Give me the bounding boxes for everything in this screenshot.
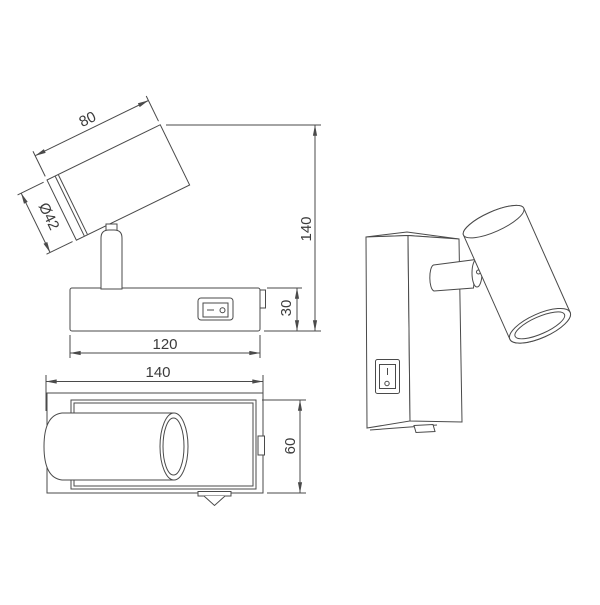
perspective-view [366, 199, 575, 432]
box-side-face [366, 236, 410, 429]
extension-line [33, 151, 45, 176]
dim-label-head-diameter: Ø42 [35, 200, 63, 233]
dim-base-width: 120 [70, 335, 260, 358]
dim-base-depth: 60 [262, 400, 306, 493]
switch-frame-top [198, 492, 231, 497]
extension-line [146, 96, 158, 121]
side-tab-top [258, 436, 265, 455]
bottom-tab [414, 425, 435, 433]
dim-label-head-length: 80 [76, 108, 98, 131]
spot-head-side: 80 Ø42 [0, 84, 190, 254]
switch-rocker [203, 303, 228, 317]
rocker-switch-top [198, 492, 231, 506]
technical-drawing-page: 80 Ø42 120 [0, 0, 600, 600]
dim-label-base-height: 30 [278, 300, 295, 317]
dim-label-base-width: 120 [152, 336, 177, 353]
spot-head-top [44, 413, 174, 480]
dim-base-height: 30 [267, 288, 302, 331]
top-view: 140 60 [44, 364, 306, 506]
extension-line [18, 182, 44, 195]
rocker-switch-side [198, 298, 233, 320]
pivot-arm [430, 260, 476, 292]
side-view: 80 Ø42 120 [0, 84, 321, 358]
rocker-switch-3d [376, 360, 400, 394]
spot-head-body [47, 125, 190, 240]
side-tab [260, 290, 266, 308]
dimension-drawing: 80 Ø42 120 [0, 0, 600, 600]
dim-label-base-depth: 60 [282, 438, 299, 455]
dim-label-overall-height: 140 [298, 216, 315, 241]
switch-rocker-top [204, 496, 225, 506]
pivot-stem [101, 230, 122, 289]
dim-label-overall-depth: 140 [145, 364, 170, 381]
